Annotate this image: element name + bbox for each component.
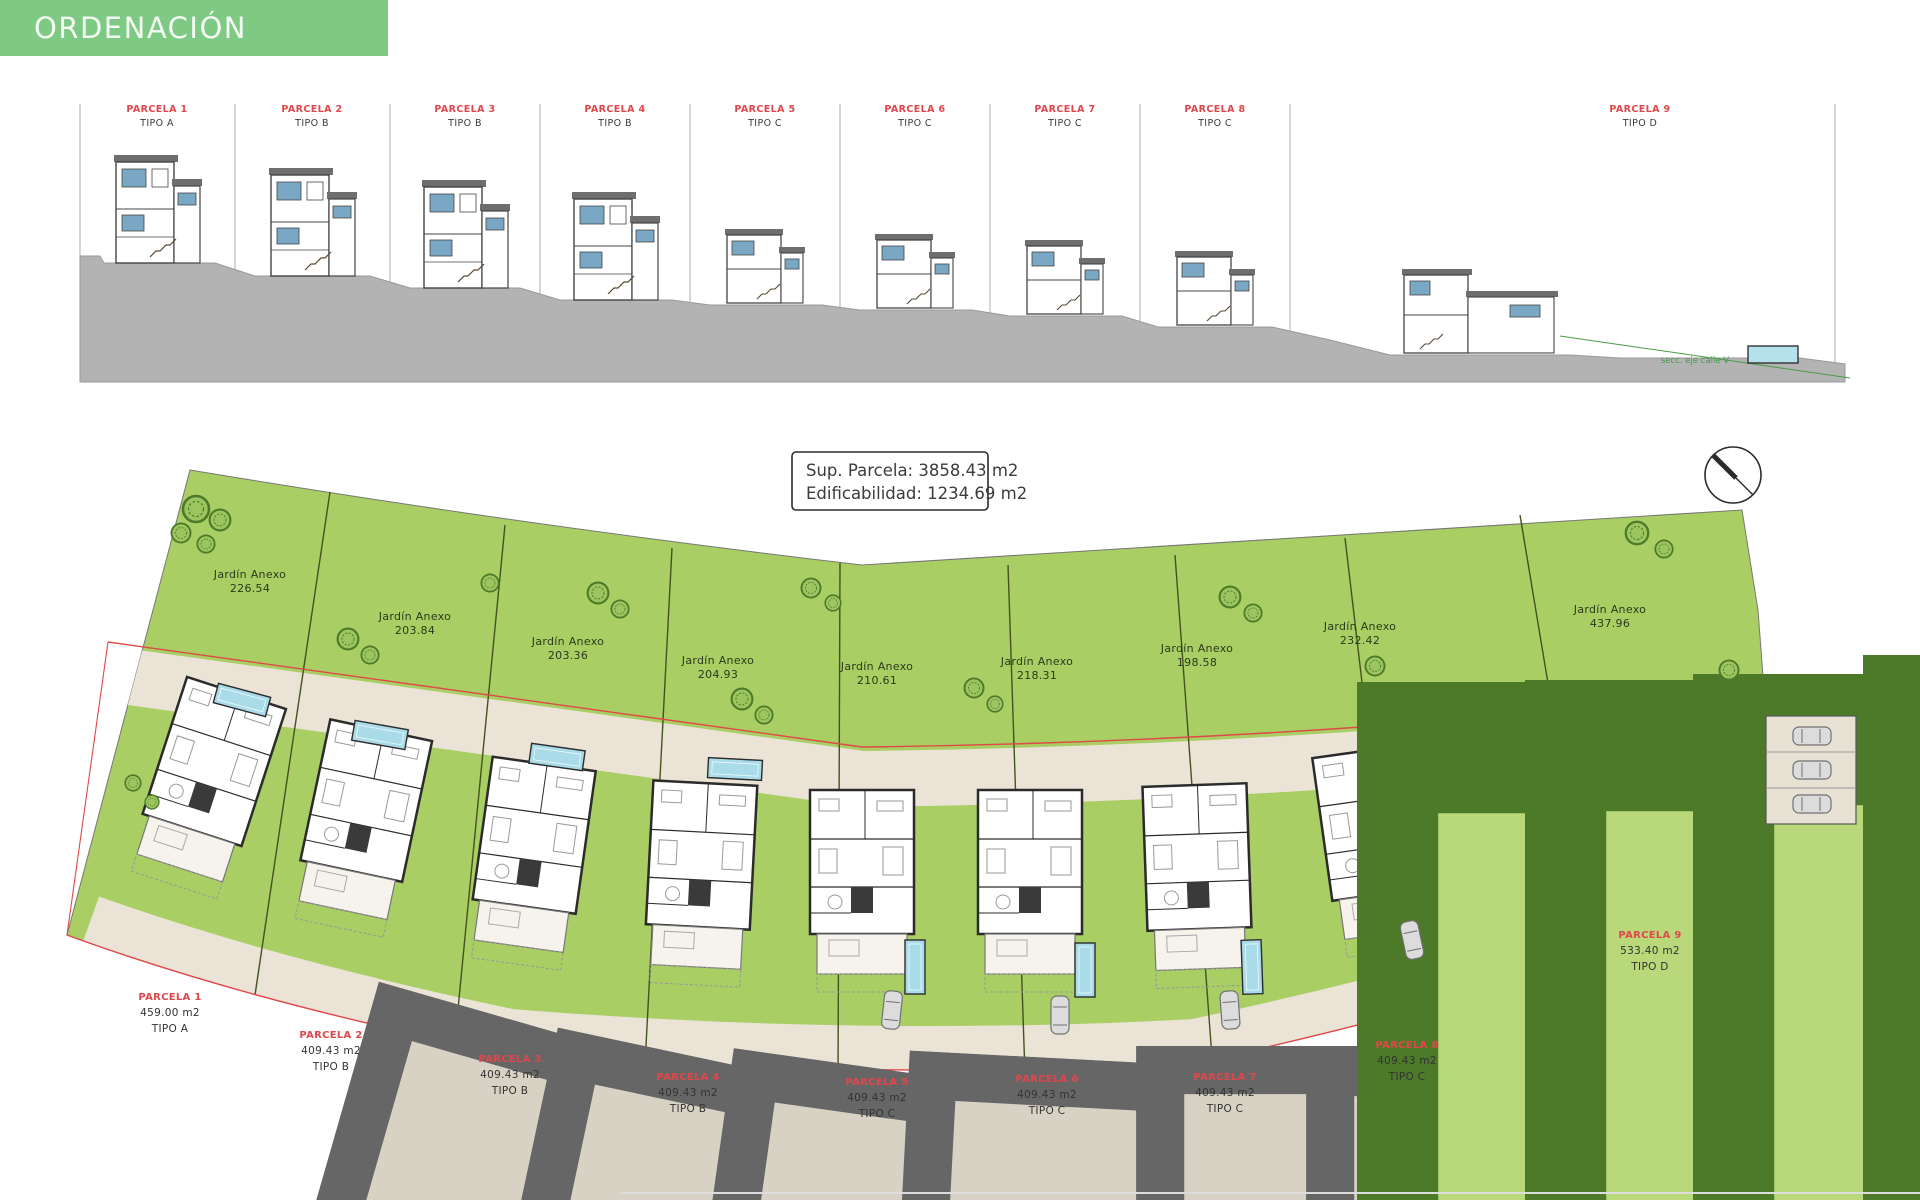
- section-parcel-2-tipo: TIPO B: [294, 118, 329, 129]
- plot-label-5-tipo: TIPO C: [858, 1108, 896, 1120]
- car-icon: [1793, 795, 1831, 813]
- house-section-3: [422, 180, 510, 288]
- plot-label-8-tipo: TIPO C: [1388, 1071, 1426, 1083]
- plot-label-1-area: 459.00 m2: [140, 1007, 200, 1019]
- house-plan-5: [810, 790, 914, 992]
- plot-label-7-tipo: TIPO C: [1206, 1103, 1244, 1115]
- pool-section: [1748, 346, 1798, 363]
- north-arrow-icon: [1705, 447, 1761, 503]
- plot-label-8-name: PARCELA 8: [1375, 1040, 1438, 1051]
- garden-label-4: Jardín Anexo: [681, 654, 754, 667]
- street-section-label: secc. eje calle V: [1661, 356, 1729, 366]
- house-section-5: [725, 229, 805, 303]
- section-parcel-4-tipo: TIPO B: [597, 118, 632, 129]
- plot-label-6-area: 409.43 m2: [1017, 1089, 1077, 1101]
- garden-area-3: 203.36: [548, 649, 588, 662]
- house-plan-6: [978, 790, 1082, 992]
- plot-label-9-tipo: TIPO D: [1630, 961, 1668, 973]
- section-parcel-3-name: PARCELA 3: [434, 104, 495, 115]
- plot-label-3-name: PARCELA 3: [478, 1054, 541, 1065]
- garden-label-9: Jardín Anexo: [1573, 603, 1646, 616]
- car-icon: [881, 990, 903, 1030]
- plot-label-8-area: 409.43 m2: [1377, 1055, 1437, 1067]
- garden-area-5: 210.61: [857, 674, 897, 687]
- house-plan-4: [643, 780, 757, 987]
- section-parcel-8-tipo: TIPO C: [1197, 118, 1232, 129]
- section-parcel-7-tipo: TIPO C: [1047, 118, 1082, 129]
- page-title: ORDENACIÓN: [34, 11, 247, 45]
- section-parcel-7-name: PARCELA 7: [1034, 104, 1095, 115]
- garden-area-4: 204.93: [698, 668, 738, 681]
- info-sup-parcela: Sup. Parcela: 3858.43 m2: [806, 461, 1018, 480]
- garden-label-3: Jardín Anexo: [531, 635, 604, 648]
- plot-label-4-area: 409.43 m2: [658, 1087, 718, 1099]
- plot-label-6-tipo: TIPO C: [1028, 1105, 1066, 1117]
- section-parcel-6-name: PARCELA 6: [884, 104, 945, 115]
- house-section-4: [572, 192, 660, 300]
- garden-label-1: Jardín Anexo: [213, 568, 286, 581]
- garden-area-2: 203.84: [395, 624, 435, 637]
- plot-label-6-name: PARCELA 6: [1015, 1074, 1078, 1085]
- section-parcel-5-tipo: TIPO C: [747, 118, 782, 129]
- site-plan: Jardín Anexo 226.54 Jardín Anexo 203.84 …: [0, 430, 1920, 1200]
- section-parcel-5-name: PARCELA 5: [734, 104, 795, 115]
- info-box: Sup. Parcela: 3858.43 m2 Edificabilidad:…: [792, 452, 1027, 510]
- plot-label-3-area: 409.43 m2: [480, 1069, 540, 1081]
- plot-label-2-name: PARCELA 2: [299, 1030, 362, 1041]
- plot-label-4-tipo: TIPO B: [669, 1103, 706, 1115]
- section-parcel-4-name: PARCELA 4: [584, 104, 645, 115]
- house-section-9: [1402, 269, 1558, 353]
- section-parcel-6-tipo: TIPO C: [897, 118, 932, 129]
- title-banner: ORDENACIÓN: [0, 0, 388, 56]
- plot-label-5-area: 409.43 m2: [847, 1092, 907, 1104]
- house-section-1: [114, 155, 202, 263]
- garden-area-1: 226.54: [230, 582, 270, 595]
- plot-label-9-name: PARCELA 9: [1618, 930, 1681, 941]
- garden-area-7: 198.58: [1177, 656, 1217, 669]
- elevation-sections: secc. eje calle V PARCELA 1 TIPO A PARCE…: [0, 90, 1920, 430]
- garden-area-9: 437.96: [1590, 617, 1630, 630]
- garden-area-8: 232.42: [1340, 634, 1380, 647]
- garden-label-7: Jardín Anexo: [1160, 642, 1233, 655]
- house-section-2: [269, 168, 357, 276]
- garden-label-6: Jardín Anexo: [1000, 655, 1073, 668]
- section-parcel-1-name: PARCELA 1: [126, 104, 187, 115]
- car-icon: [1793, 761, 1831, 779]
- garden-area-6: 218.31: [1017, 669, 1057, 682]
- house-plan-7: [1142, 783, 1253, 989]
- plot-label-1-name: PARCELA 1: [138, 992, 201, 1003]
- plot-label-4-name: PARCELA 4: [656, 1072, 719, 1083]
- house-section-8: [1175, 251, 1255, 325]
- section-parcel-1-tipo: TIPO A: [139, 118, 174, 129]
- car-icon: [1220, 990, 1241, 1029]
- house-section-6: [875, 234, 955, 308]
- section-parcel-2-name: PARCELA 2: [281, 104, 342, 115]
- plot-label-3-tipo: TIPO B: [491, 1085, 528, 1097]
- garden-label-5: Jardín Anexo: [840, 660, 913, 673]
- plot-label-5-name: PARCELA 5: [845, 1077, 908, 1088]
- parking-structure: [1766, 716, 1856, 824]
- plot-label-2-tipo: TIPO B: [312, 1061, 349, 1073]
- plot-label-9-area: 533.40 m2: [1620, 945, 1680, 957]
- garden-label-2: Jardín Anexo: [378, 610, 451, 623]
- car-icon: [1051, 996, 1069, 1034]
- plot-label-7-area: 409.43 m2: [1195, 1087, 1255, 1099]
- section-parcel-3-tipo: TIPO B: [447, 118, 482, 129]
- plot-label-7-name: PARCELA 7: [1193, 1072, 1256, 1083]
- section-parcel-9-name: PARCELA 9: [1609, 104, 1670, 115]
- garden-label-8: Jardín Anexo: [1323, 620, 1396, 633]
- plot-label-1-tipo: TIPO A: [151, 1023, 189, 1035]
- section-parcel-8-name: PARCELA 8: [1184, 104, 1245, 115]
- drawing-sheet: { "header": { "title": "ORDENACIÓN" }, "…: [0, 0, 1920, 1200]
- car-icon: [1793, 727, 1831, 745]
- plot-label-2-area: 409.43 m2: [301, 1045, 361, 1057]
- info-edificabilidad: Edificabilidad: 1234.69 m2: [806, 484, 1027, 503]
- section-parcel-9-tipo: TIPO D: [1622, 118, 1658, 129]
- house-section-7: [1025, 240, 1105, 314]
